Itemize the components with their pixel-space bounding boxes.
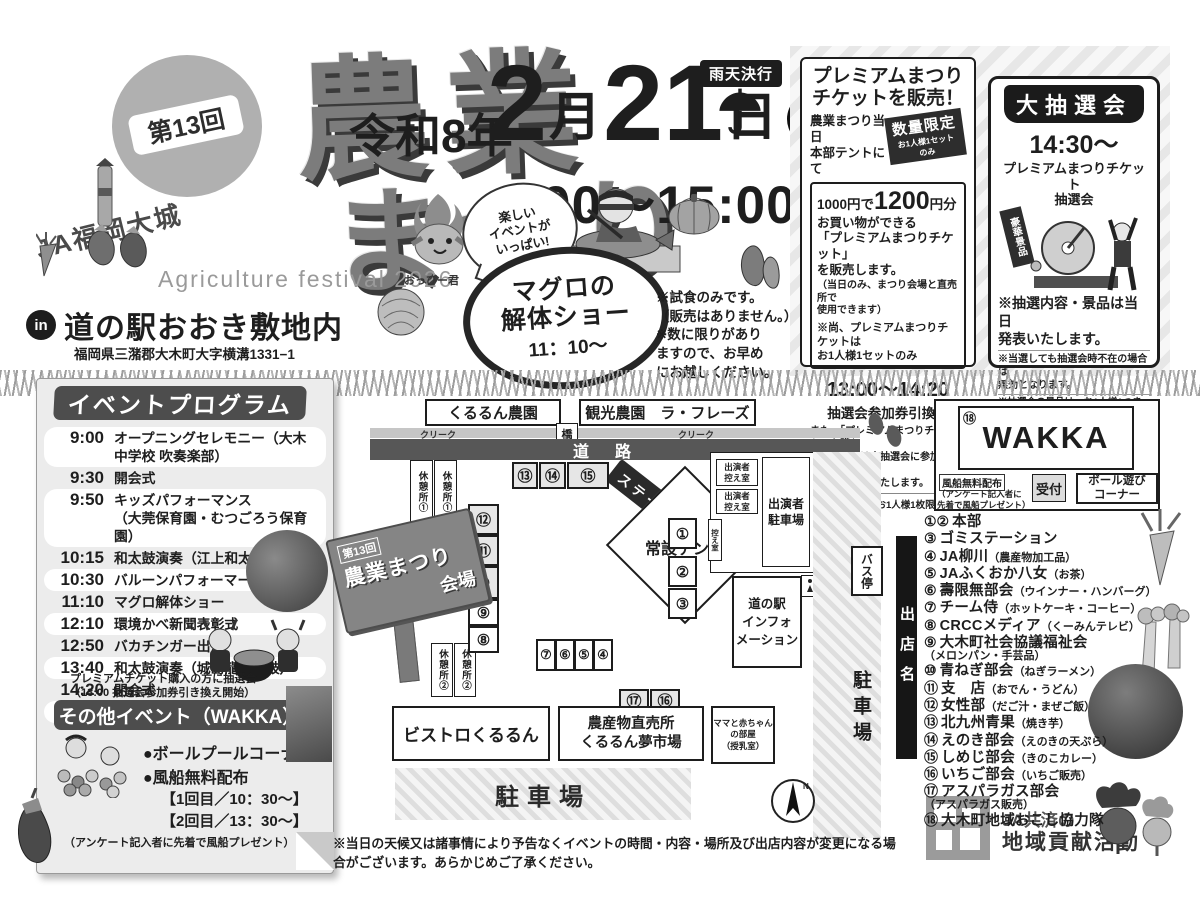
program-time: 9:00 — [50, 428, 104, 448]
map-waiting-room: 控え室 — [708, 519, 722, 561]
store-name: アスパラガス部会 — [941, 785, 1059, 800]
tuna-show-notes: ※試食のみです。 （販売はありません。） ※数に限りがあり ますので、お早め に… — [656, 289, 798, 382]
store-detail: （焼き芋） — [1015, 719, 1070, 730]
program-row: 9:00オープニングセレモニー（大木中学校 吹奏楽部） — [44, 427, 326, 467]
festival-poster: 第13回 JA福岡大城 農業 まつり Agriculture festival … — [0, 0, 1200, 900]
map-side-path — [813, 452, 881, 838]
store-name: ゴミステーション — [940, 532, 1058, 547]
store-row: ⑤JAふくおか八女（お茶） — [924, 566, 1168, 582]
premium-body: お買い物ができる 「プレミアムまつりチケット」 を販売します。 — [817, 216, 959, 279]
north-label: N — [803, 782, 809, 791]
other-events-title: その他イベント（WAKKA） — [54, 700, 306, 730]
store-detail: （お茶） — [1048, 570, 1092, 581]
store-detail: （アスパラガス販売） — [924, 800, 1034, 811]
panel-folded-corner — [296, 832, 334, 870]
lottery-note-announce: ※抽選内容・景品は当日 発表いたします。 — [998, 294, 1150, 349]
lottery-time: 14:30〜 — [998, 125, 1150, 161]
store-row: ⑧CRCCメディア（くーみんテレビ） — [924, 618, 1168, 634]
program-title: イベントプログラム — [53, 386, 307, 420]
store-number: ⑮ — [924, 750, 938, 764]
program-note: プレミアムチケット購入の方に抽選会 （13:00 抽選会参加券引き換え開始） — [70, 672, 256, 701]
price-prefix: 1000円で — [817, 197, 874, 212]
store-name: CRCCメディア — [940, 619, 1041, 634]
lottery-illustration-area: 豪華景品 — [998, 208, 1150, 294]
store-number: ③ — [924, 531, 937, 545]
map-mama-baby-room: ママと赤ちゃん の部屋 （授乳室） — [711, 706, 775, 764]
store-name: 壽限無部会 — [940, 584, 1014, 599]
map-rest-area-1: 休憩所① — [410, 460, 433, 524]
tuna-show-time: 11：10〜 — [528, 330, 609, 362]
lottery-wheel-illustration — [1026, 210, 1146, 294]
map-main-parking: 駐車場 — [395, 768, 691, 820]
store-number: ⑦ — [924, 600, 937, 614]
map-farm-la-fraise: 観光農園 ラ・フレーズ — [579, 399, 756, 426]
store-detail: （農産物加工品） — [988, 553, 1076, 564]
store-name: チーム侍 — [940, 601, 999, 616]
premium-title: プレミアムまつり チケットを販売！ — [810, 66, 966, 110]
store-name: JAふくおか八女 — [940, 567, 1048, 582]
store-name: 青ねぎ部会 — [940, 664, 1014, 679]
price-amount: 1200 — [874, 187, 930, 215]
store-detail: （メロンパン・手芸品） — [924, 651, 1046, 662]
date-month-number: 2 — [487, 55, 547, 150]
other-balloon-time1: 【1回目／10：30〜】 — [161, 788, 308, 809]
cabbage-icon — [372, 286, 430, 338]
store-number: ④ — [924, 549, 937, 563]
carrot-icon — [36, 232, 76, 278]
store-name: JA柳川 — [940, 550, 989, 565]
venue-address: 福岡県三潴郡大木町大字横溝1331−1 — [74, 343, 295, 363]
program-time: 12:10 — [50, 614, 104, 634]
wakka-number: ⑱ — [963, 408, 976, 427]
stall-cell: ④ — [593, 639, 613, 671]
store-detail: （だご汁・まぜご飯） — [985, 702, 1095, 713]
venue-name: 道の駅おおき敷地内 — [64, 303, 343, 347]
map-michinoeki-information: 道の駅 インフォ メーション — [732, 576, 802, 668]
store-number: ⑧ — [924, 618, 937, 632]
footprints-icon — [862, 408, 906, 452]
store-number: ⑯ — [924, 767, 938, 781]
program-row: 9:30開会式 — [44, 467, 326, 489]
map-performer-room: 出演者 控え室 — [716, 459, 758, 486]
program-time: 9:50 — [50, 490, 104, 510]
store-detail: （ホットケーキ・コーヒー） — [998, 604, 1141, 615]
venue-sign: 第13回 農業まつり 会場 — [325, 508, 491, 635]
store-number: ⑩ — [924, 663, 937, 677]
premium-ticket-box: プレミアムまつり チケットを販売！ 農業まつり当日 本部テントにて 数量限定 お… — [800, 57, 976, 367]
store-number: ⑰ — [924, 784, 938, 798]
date-month-unit: 月 — [549, 92, 601, 144]
map-bistro-kururun: ビストロくるるん — [392, 706, 550, 761]
wakka-photo — [286, 686, 332, 762]
program-event: オープニングセレモニー（大木中学校 吹奏楽部） — [114, 428, 320, 466]
limited-quantity-badge: 数量限定 お1人様1セットのみ — [885, 108, 967, 165]
store-number: ⑫ — [924, 698, 938, 712]
program-time: 11:10 — [50, 592, 104, 612]
store-row: ⑦チーム侍（ホットケーキ・コーヒー） — [924, 600, 1168, 616]
store-number: ⑬ — [924, 715, 938, 729]
premium-body-note: （当日のみ、まつり会場と直売所で 使用できます） — [817, 280, 959, 318]
store-number: ⑤ — [924, 566, 937, 580]
wakka-ball-corner: ボール遊び コーナー — [1076, 473, 1158, 504]
stall-cell: ⑬ — [512, 462, 538, 489]
map-farm-kururun: くるるん農園 — [425, 399, 561, 426]
map-parking-side-label: 駐車場 — [847, 670, 874, 748]
store-number: ⑪ — [924, 681, 938, 695]
store-detail: （ウインナー・ハンバーグ） — [1014, 587, 1157, 598]
store-number: ⑭ — [924, 733, 938, 747]
store-detail: （おでん・うどん） — [985, 685, 1084, 696]
store-row: ⑬北九州青果（焼き芋） — [924, 715, 1168, 731]
stall-cell: ⑦ — [536, 639, 556, 671]
store-name: 大木町社会協議福祉会 — [940, 636, 1088, 651]
store-name: いちご部会 — [941, 768, 1015, 783]
program-time: 12:50 — [50, 636, 104, 656]
store-row: ⑩青ねぎ部会（ねぎラーメン） — [924, 663, 1168, 679]
date-row: 2 月 21 日 土 — [487, 55, 841, 150]
map-rest-area-2: 休憩所② — [431, 643, 453, 697]
rain-or-shine-badge: 雨天決行 — [700, 60, 782, 87]
store-number: ⑥ — [924, 583, 937, 597]
pepper-icon — [736, 234, 780, 294]
store-number: ①② — [924, 514, 949, 528]
store-row: ⑱大木町地域おこし協力隊 — [924, 813, 1168, 829]
store-name: 支 店 — [941, 682, 985, 697]
program-time: 10:15 — [50, 548, 104, 568]
footer-disclaimer: ※当日の天候又は諸事情により予告なくイベントの時間・内容・場所及び出店内容が変更… — [333, 833, 908, 871]
stall-cell: ⑤ — [574, 639, 594, 671]
store-name: 北九州青果 — [941, 716, 1015, 731]
umbrella-icon — [712, 86, 768, 138]
pumpkin-icon — [666, 190, 722, 236]
other-balloon-time2: 【2回目／13：30〜】 — [161, 810, 308, 831]
store-row: ⑨大木町社会協議福祉会（メロンパン・手芸品） — [924, 635, 1168, 662]
store-row: ④JA柳川（農産物加工品） — [924, 549, 1168, 565]
store-name: しめじ部会 — [941, 751, 1015, 766]
stall-cell: ⑧ — [468, 626, 499, 653]
store-names-vertical-label: 出店名 — [896, 536, 917, 759]
ball-pool-kids-illustration — [52, 732, 136, 798]
other-item-balloons: ●風船無料配布 — [143, 764, 249, 788]
map-performer-room: 出演者 控え室 — [716, 489, 758, 514]
store-name: 本部 — [952, 515, 982, 530]
grand-lottery-box: 大抽選会 14:30〜 プレミアムまつりチケット 抽選会 豪華景品 ※抽選内容・… — [988, 76, 1160, 368]
stall-cell: ⑭ — [539, 462, 566, 489]
program-event: 開会式 — [114, 468, 320, 488]
premium-when: 農業まつり当日 本部テントにて — [810, 113, 887, 178]
store-detail: （くーみんテレビ） — [1041, 622, 1140, 633]
stall-cell: ③ — [668, 588, 697, 619]
stall-cell: ⑮ — [567, 462, 609, 489]
premium-note-one-set: ※尚、プレミアムまつりチケットは お1人様1セットのみ — [817, 321, 959, 364]
premium-price-box: 1000円で1200円分 お買い物ができる 「プレミアムまつりチケット」 を販売… — [810, 182, 966, 369]
store-row: ⑥壽限無部会（ウインナー・ハンバーグ） — [924, 583, 1168, 599]
store-row: ⑭えのき部会（えのきの天ぷら） — [924, 733, 1168, 749]
program-time: 9:30 — [50, 468, 104, 488]
store-row: ⑰アスパラガス部会（アスパラガス販売） — [924, 784, 1168, 811]
store-number: ⑱ — [924, 813, 938, 827]
program-photo — [246, 530, 328, 612]
tuna-show-title: マグロの 解体ショー — [498, 272, 632, 336]
wakka-building: WAKKA — [958, 406, 1134, 470]
eggplant-icon — [8, 788, 56, 870]
store-row: ③ゴミステーション — [924, 531, 1168, 547]
store-row: ①②本部 — [924, 514, 1168, 530]
strawberry-icon — [78, 216, 158, 272]
store-detail: （ねぎラーメン） — [1014, 667, 1102, 678]
store-row: ⑫女性部（だご汁・まぜご飯） — [924, 698, 1168, 714]
map-bus-stop: バス停 — [851, 546, 883, 596]
store-name: 女性部 — [941, 699, 985, 714]
map-performer-parking: 出演者 駐車場 — [762, 457, 810, 567]
in-mark: in — [26, 310, 56, 340]
store-row: ⑮しめじ部会（きのこカレー） — [924, 750, 1168, 766]
wakka-reception: 受付 — [1032, 474, 1066, 502]
wakka-balloon-note: （アンケート記入者に 先着で風船プレゼント） — [937, 489, 1031, 510]
lottery-banner: 大抽選会 — [1004, 85, 1144, 123]
store-number: ⑨ — [924, 635, 937, 649]
store-list: ①②本部 ③ゴミステーション ④JA柳川（農産物加工品） ⑤JAふくおか八女（お… — [924, 514, 1168, 830]
other-note: （アンケート記入者に先着で風船プレゼント） — [64, 834, 295, 850]
lottery-subtitle: プレミアムまつりチケット 抽選会 — [998, 161, 1150, 208]
map-farmers-market: 農産物直売所 くるるん夢市場 — [558, 706, 704, 761]
stall-cell: ① — [668, 518, 697, 549]
stall-cell: ⑥ — [555, 639, 575, 671]
store-name: 大木町地域おこし協力隊 — [941, 814, 1104, 829]
store-detail: （えのきの天ぷら） — [1015, 737, 1114, 748]
program-time: 10:30 — [50, 570, 104, 590]
store-row: ⑯いちご部会（いちご販売） — [924, 767, 1168, 783]
north-arrow-icon: N — [770, 778, 816, 824]
store-detail: （いちご販売） — [1015, 771, 1092, 782]
stall-cell: ② — [668, 556, 697, 587]
price-suffix: 円分 — [930, 197, 957, 212]
store-detail: （きのこカレー） — [1015, 754, 1103, 765]
store-row: ⑪支 店（おでん・うどん） — [924, 681, 1168, 697]
store-name: えのき部会 — [941, 734, 1015, 749]
